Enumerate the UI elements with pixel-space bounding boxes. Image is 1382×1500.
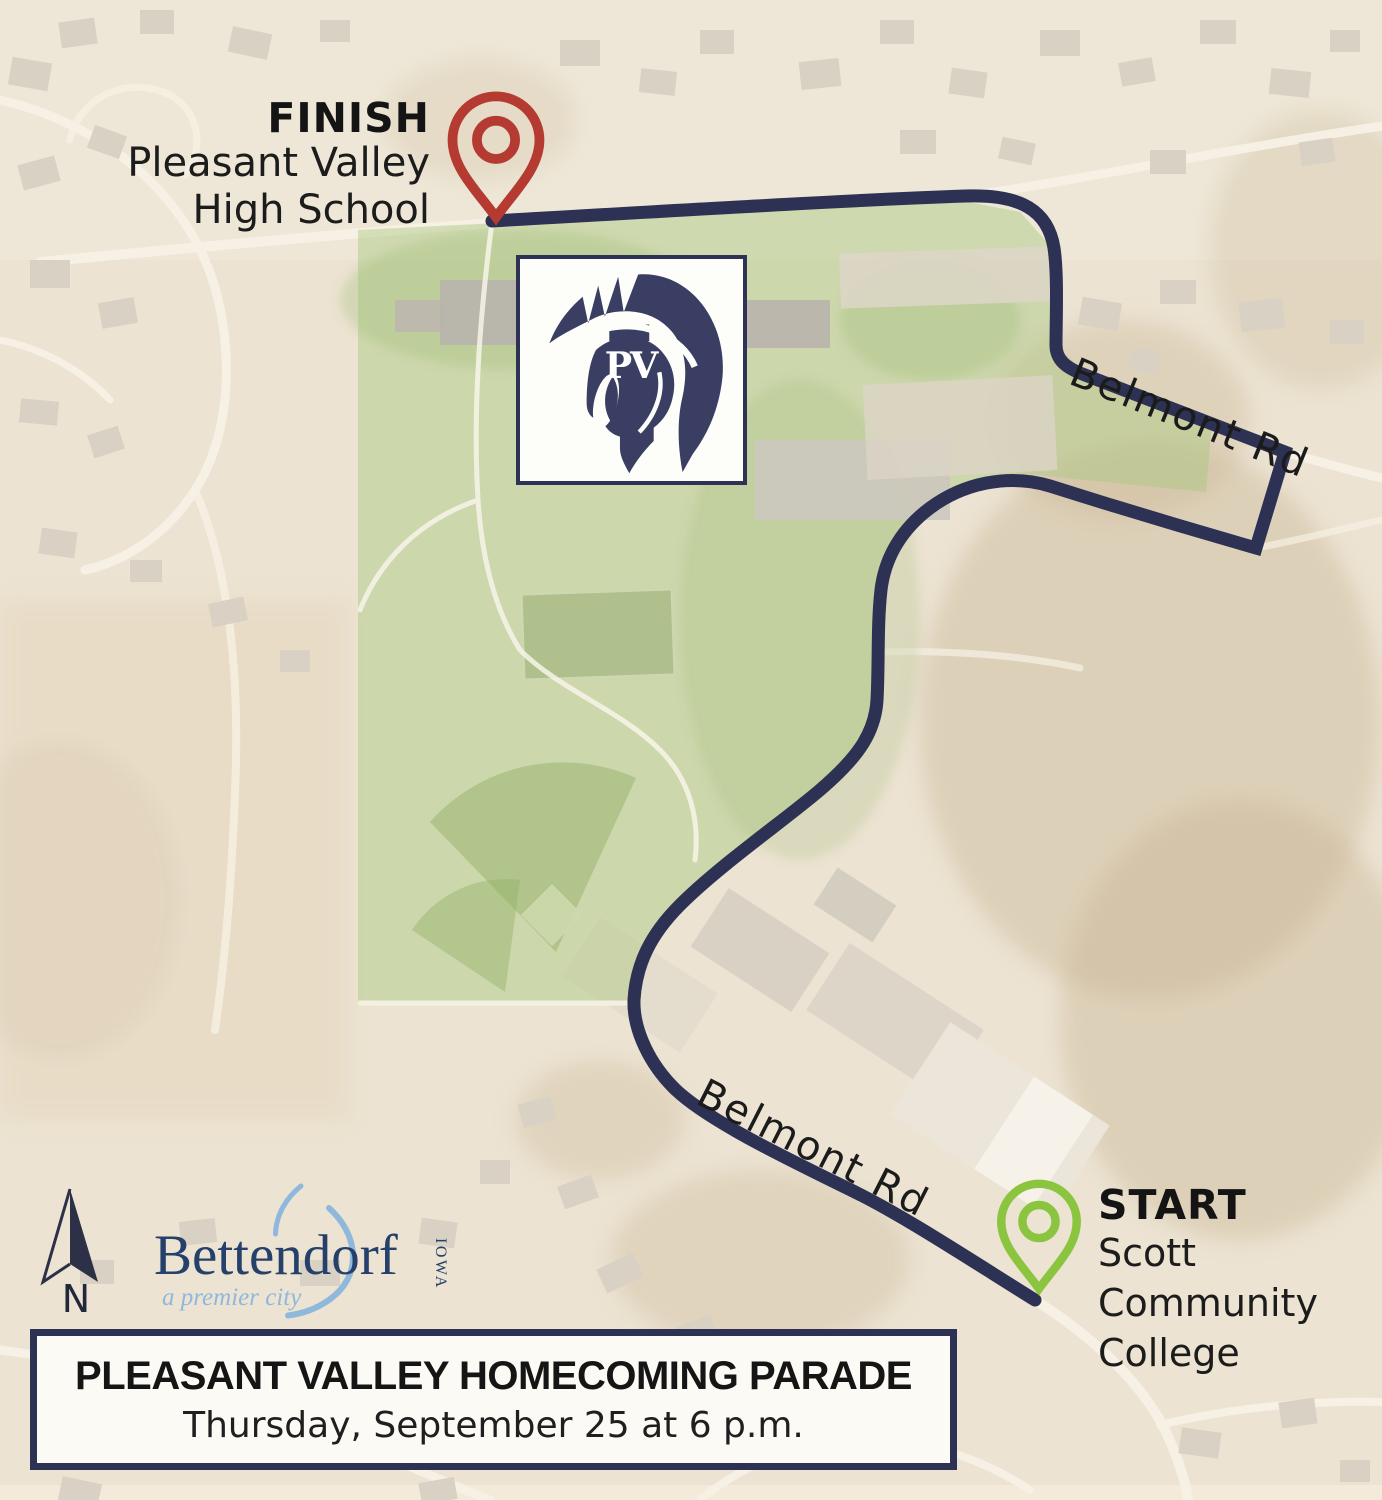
spartan-helmet-icon: PV — [520, 259, 743, 481]
compass-label: N — [62, 1277, 90, 1316]
finish-label: FINISH — [127, 96, 430, 140]
start-label: START — [1098, 1182, 1318, 1228]
finish-location-line1: Pleasant Valley — [127, 140, 430, 187]
start-location-line2: Community — [1098, 1278, 1318, 1328]
parade-map-flyer: FINISH Pleasant Valley High School START… — [0, 0, 1382, 1500]
finish-location-line2: High School — [127, 187, 430, 234]
banner-subtitle: Thursday, September 25 at 6 p.m. — [183, 1405, 804, 1446]
north-arrow-icon: N — [38, 1186, 108, 1316]
banner-title: PLEASANT VALLEY HOMECOMING PARADE — [75, 1354, 912, 1399]
city-logo: Bettendorf IOWA a premier city — [148, 1180, 478, 1322]
event-banner: PLEASANT VALLEY HOMECOMING PARADE Thursd… — [30, 1329, 957, 1470]
start-label-block: START Scott Community College — [1098, 1182, 1318, 1378]
start-location-line1: Scott — [1098, 1228, 1318, 1278]
finish-label-block: FINISH Pleasant Valley High School — [127, 96, 430, 234]
compass: N — [38, 1186, 108, 1316]
logo-monogram: PV — [605, 344, 659, 387]
city-tagline: a premier city — [162, 1284, 302, 1311]
city-name: Bettendorf — [154, 1224, 398, 1287]
start-location-line3: College — [1098, 1328, 1318, 1378]
finish-pin-icon — [443, 96, 549, 224]
start-pin-icon — [993, 1176, 1085, 1302]
stadium-field — [522, 589, 675, 679]
school-logo: PV — [516, 255, 747, 485]
city-state: IOWA — [432, 1238, 449, 1290]
